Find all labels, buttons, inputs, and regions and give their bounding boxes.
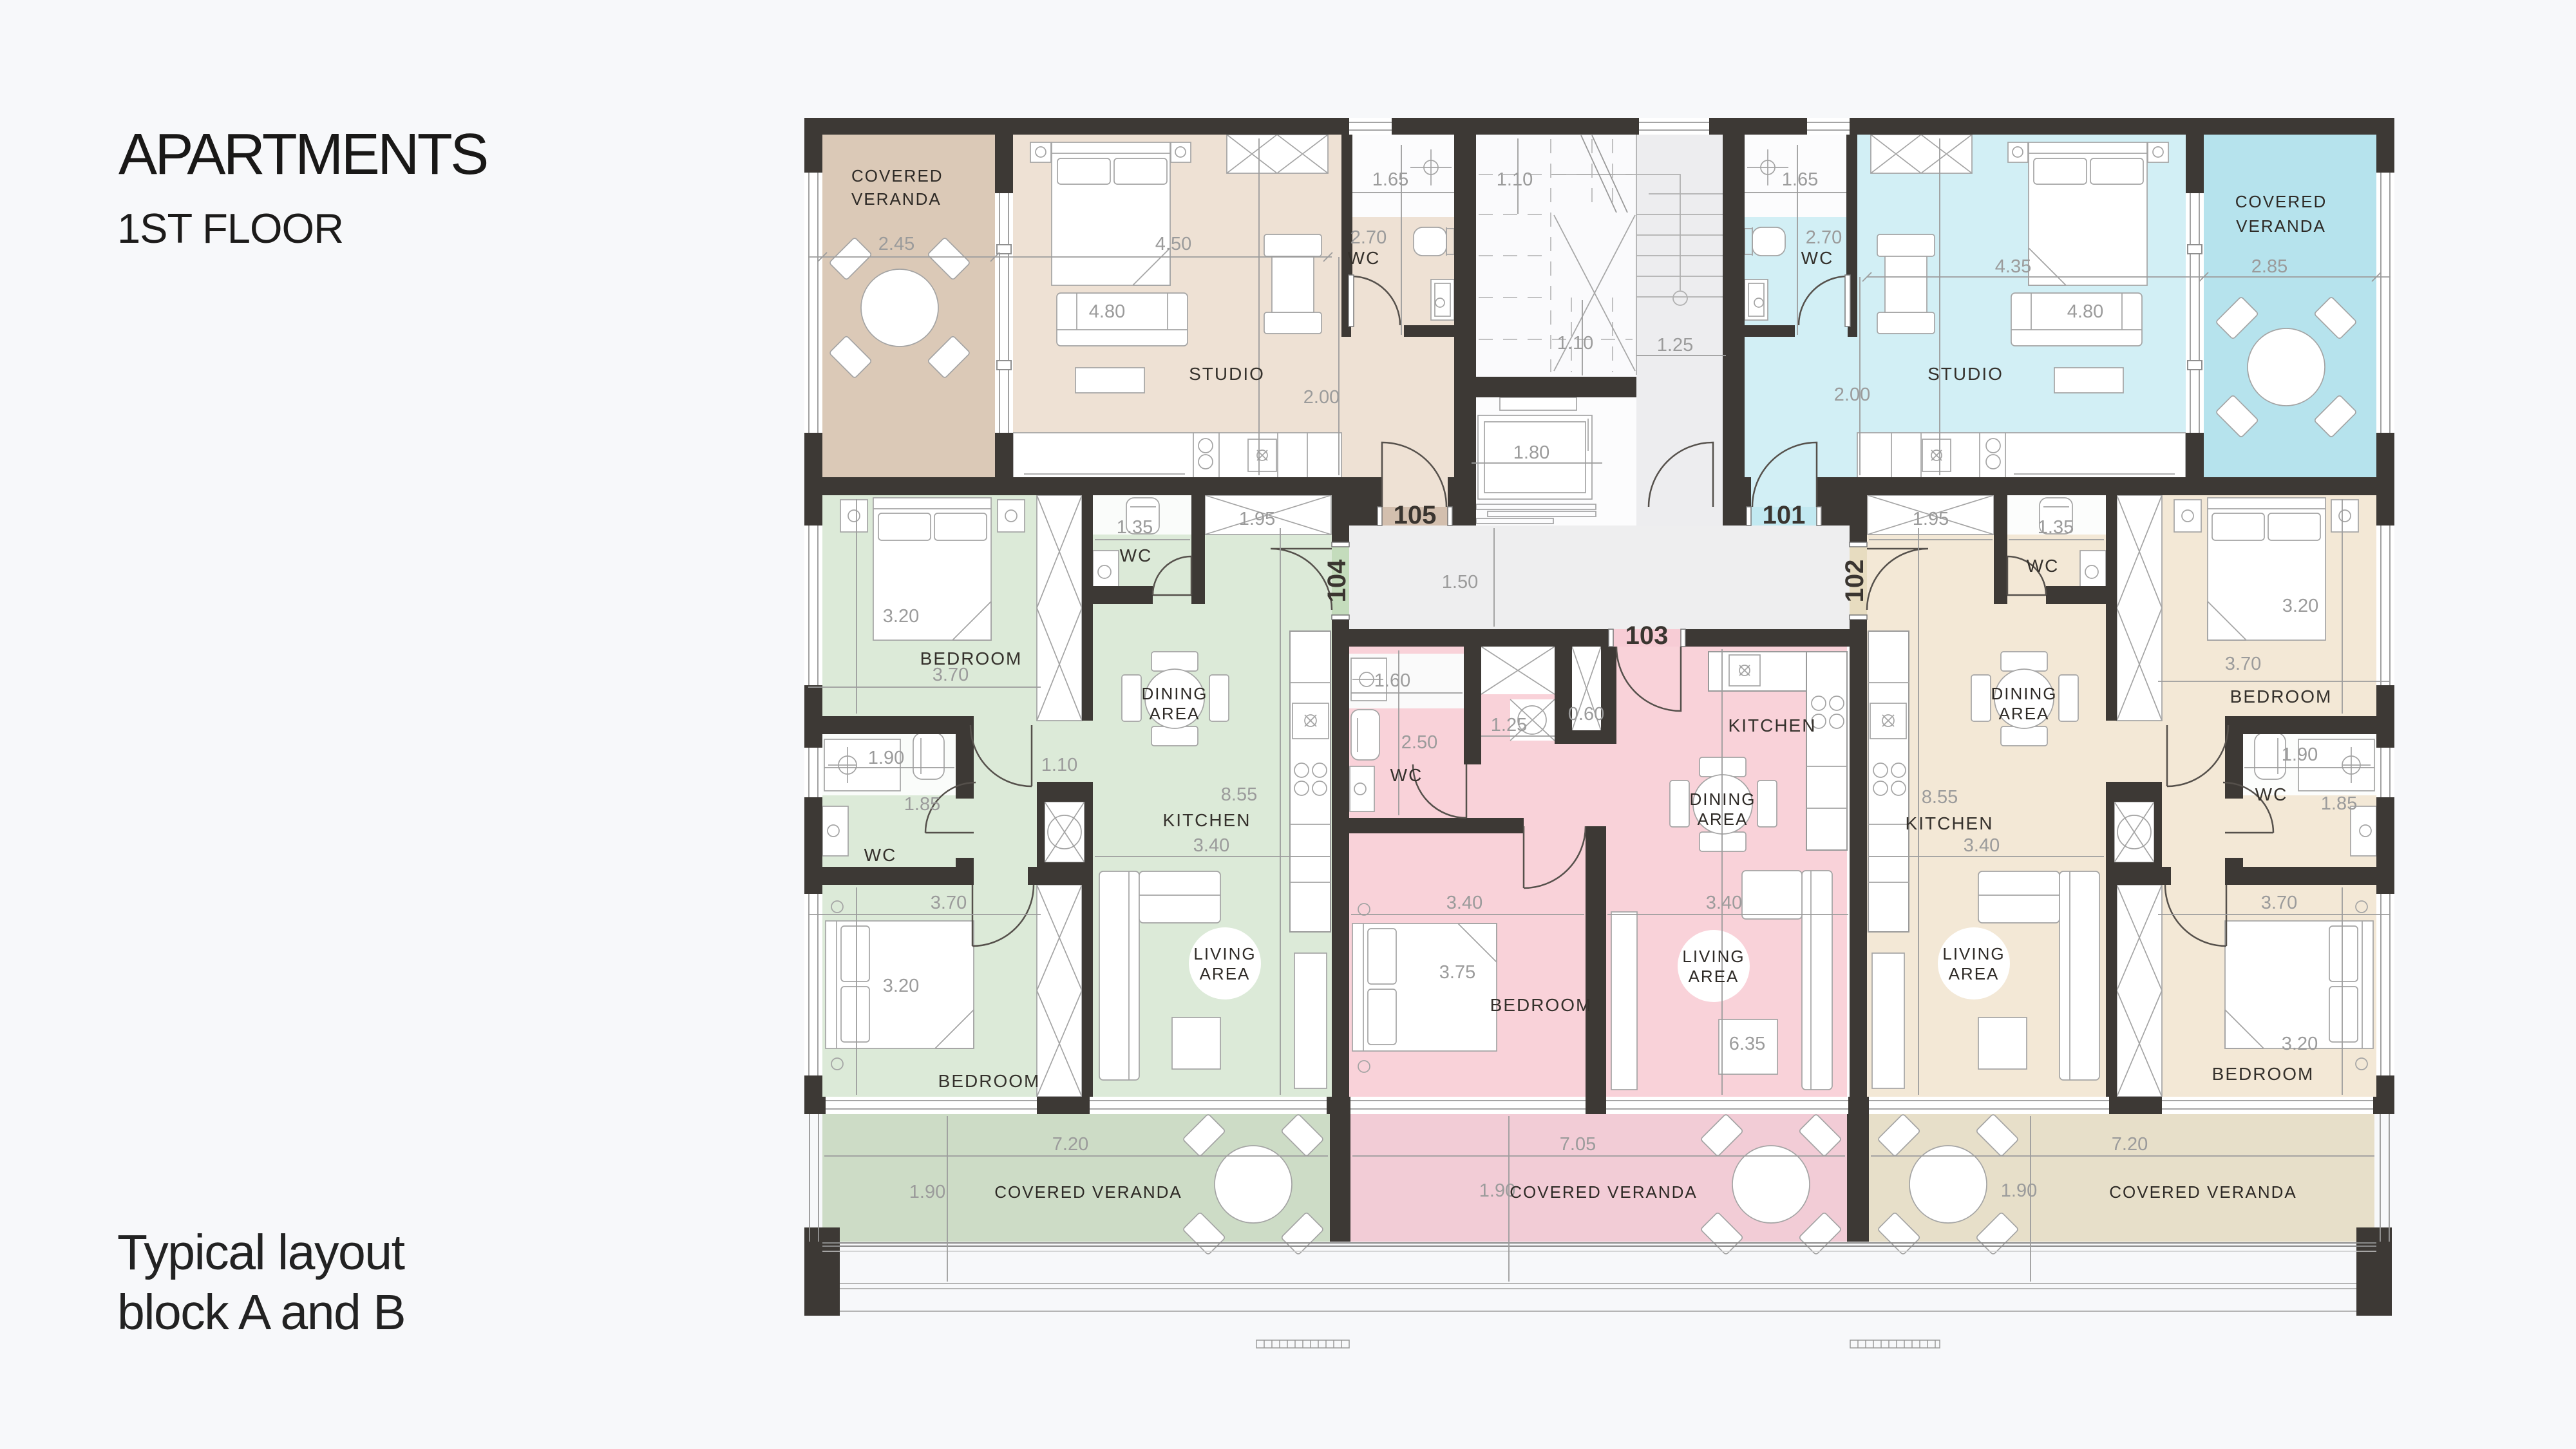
svg-text:STUDIO: STUDIO [1189, 364, 1265, 384]
svg-text:BEDROOM: BEDROOM [2212, 1064, 2315, 1084]
svg-text:3.70: 3.70 [931, 893, 967, 913]
svg-text:0.60: 0.60 [1568, 704, 1604, 724]
svg-text:3.20: 3.20 [2282, 1034, 2318, 1054]
svg-text:LIVING: LIVING [1942, 944, 2005, 963]
svg-text:1.10: 1.10 [1557, 333, 1593, 354]
svg-text:3.40: 3.40 [1193, 835, 1229, 856]
svg-text:1.25: 1.25 [1491, 715, 1527, 735]
svg-text:1.90: 1.90 [2282, 744, 2318, 765]
svg-text:8.55: 8.55 [1922, 787, 1958, 808]
svg-text:KITCHEN: KITCHEN [1163, 810, 1251, 830]
svg-text:BEDROOM: BEDROOM [1490, 995, 1593, 1015]
svg-text:BEDROOM: BEDROOM [938, 1071, 1041, 1091]
svg-text:103: 103 [1625, 621, 1669, 650]
svg-text:7.20: 7.20 [2112, 1134, 2148, 1155]
svg-text:1.85: 1.85 [2321, 793, 2357, 814]
svg-text:7.20: 7.20 [1052, 1134, 1088, 1155]
svg-text:KITCHEN: KITCHEN [1906, 813, 1994, 833]
svg-text:KITCHEN: KITCHEN [1728, 715, 1817, 735]
svg-text:3.70: 3.70 [933, 665, 969, 685]
svg-text:WC: WC [1801, 248, 1834, 268]
svg-text:WC: WC [864, 845, 897, 865]
svg-text:6.35: 6.35 [1729, 1034, 1765, 1054]
svg-text:1.85: 1.85 [904, 794, 940, 815]
svg-text:COVERED: COVERED [2235, 192, 2327, 211]
svg-text:AREA: AREA [1150, 704, 1200, 723]
svg-text:1.10: 1.10 [1041, 755, 1077, 775]
svg-text:1.65: 1.65 [1782, 169, 1818, 190]
svg-text:1ST FLOOR: 1ST FLOOR [117, 205, 343, 252]
svg-text:AREA: AREA [1200, 964, 1251, 983]
svg-text:AREA: AREA [1949, 964, 2000, 983]
svg-text:2.00: 2.00 [1834, 384, 1870, 405]
svg-text:1.35: 1.35 [1117, 517, 1153, 538]
svg-text:DINING: DINING [1690, 790, 1756, 809]
svg-text:Typical layout: Typical layout [117, 1225, 405, 1280]
svg-text:COVERED VERANDA: COVERED VERANDA [2109, 1182, 2297, 1202]
svg-text:AREA: AREA [1999, 704, 2050, 723]
svg-text:102: 102 [1841, 560, 1869, 603]
svg-text:VERANDA: VERANDA [2236, 216, 2326, 236]
svg-text:3.20: 3.20 [2282, 596, 2318, 616]
svg-text:DINING: DINING [1991, 684, 2058, 703]
svg-text:3.20: 3.20 [883, 976, 919, 996]
svg-text:WC: WC [1390, 765, 1423, 785]
svg-text:105: 105 [1394, 501, 1437, 529]
svg-text:1.90: 1.90 [2001, 1180, 2037, 1201]
svg-text:LIVING: LIVING [1682, 947, 1745, 966]
svg-text:VERANDA: VERANDA [851, 189, 942, 209]
svg-text:3.40: 3.40 [1964, 835, 2000, 856]
svg-text:2.45: 2.45 [878, 234, 914, 254]
svg-text:COVERED VERANDA: COVERED VERANDA [994, 1182, 1182, 1202]
svg-text:1.65: 1.65 [1372, 169, 1408, 190]
svg-text:2.85: 2.85 [2251, 256, 2287, 277]
svg-text:1.90: 1.90 [909, 1182, 945, 1202]
svg-text:4.35: 4.35 [1995, 256, 2031, 277]
svg-text:AREA: AREA [1698, 810, 1748, 829]
svg-text:DINING: DINING [1142, 684, 1208, 703]
svg-text:3.20: 3.20 [883, 606, 919, 627]
svg-text:3.75: 3.75 [1439, 962, 1475, 983]
svg-text:1.25: 1.25 [1657, 335, 1693, 355]
svg-text:101: 101 [1763, 501, 1806, 529]
svg-text:8.55: 8.55 [1221, 784, 1257, 805]
svg-text:2.70: 2.70 [1806, 227, 1842, 248]
svg-text:3.70: 3.70 [2261, 893, 2297, 913]
svg-text:4.50: 4.50 [1155, 234, 1191, 254]
svg-text:APARTMENTS: APARTMENTS [118, 122, 487, 187]
svg-text:COVERED VERANDA: COVERED VERANDA [1510, 1182, 1698, 1202]
svg-text:2.70: 2.70 [1350, 227, 1387, 248]
svg-text:1.95: 1.95 [1913, 509, 1949, 529]
svg-text:3.40: 3.40 [1706, 893, 1742, 913]
svg-text:WC: WC [2255, 784, 2288, 804]
svg-text:AREA: AREA [1689, 967, 1739, 986]
svg-text:3.70: 3.70 [2225, 654, 2261, 674]
svg-text:2.50: 2.50 [1401, 732, 1437, 753]
svg-text:1.90: 1.90 [868, 748, 904, 768]
svg-text:WC: WC [1348, 248, 1381, 268]
svg-text:1.80: 1.80 [1513, 442, 1549, 463]
svg-text:4.80: 4.80 [1089, 301, 1125, 322]
svg-text:BEDROOM: BEDROOM [2230, 687, 2333, 706]
svg-text:WC: WC [1120, 545, 1153, 565]
svg-text:104: 104 [1323, 559, 1351, 602]
svg-text:STUDIO: STUDIO [1927, 364, 2003, 384]
svg-text:1.95: 1.95 [1239, 509, 1275, 529]
svg-text:4.80: 4.80 [2067, 301, 2103, 322]
svg-text:7.05: 7.05 [1560, 1134, 1596, 1155]
svg-text:1.35: 1.35 [2038, 517, 2074, 538]
svg-text:WC: WC [2027, 556, 2060, 576]
svg-text:LIVING: LIVING [1193, 944, 1256, 963]
svg-text:1.60: 1.60 [1374, 670, 1410, 691]
svg-text:1.10: 1.10 [1497, 169, 1533, 190]
svg-text:COVERED: COVERED [851, 166, 943, 185]
svg-text:block A and B: block A and B [117, 1285, 405, 1340]
svg-text:3.40: 3.40 [1446, 893, 1482, 913]
svg-text:2.00: 2.00 [1303, 387, 1340, 408]
svg-text:1.50: 1.50 [1442, 572, 1478, 592]
